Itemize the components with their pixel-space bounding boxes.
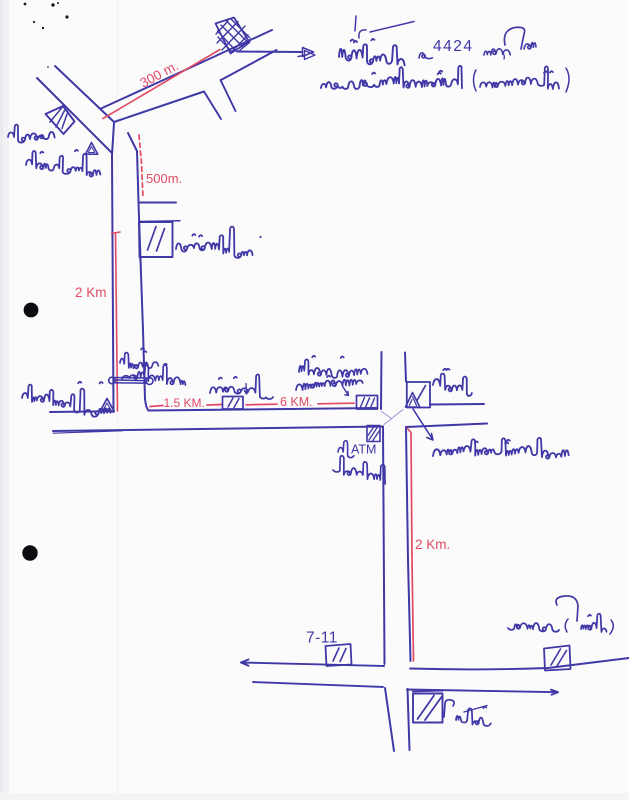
- svg-text:4424: 4424: [433, 38, 473, 55]
- svg-text:1.5 KM.: 1.5 KM.: [164, 396, 205, 410]
- svg-text:6 KM.: 6 KM.: [280, 395, 313, 409]
- svg-text:2 Km: 2 Km: [75, 285, 107, 300]
- svg-text:2 Km.: 2 Km.: [415, 537, 450, 552]
- svg-text:7-11: 7-11: [306, 630, 338, 647]
- svg-text:ATM: ATM: [351, 443, 376, 457]
- svg-text:500m.: 500m.: [146, 171, 182, 186]
